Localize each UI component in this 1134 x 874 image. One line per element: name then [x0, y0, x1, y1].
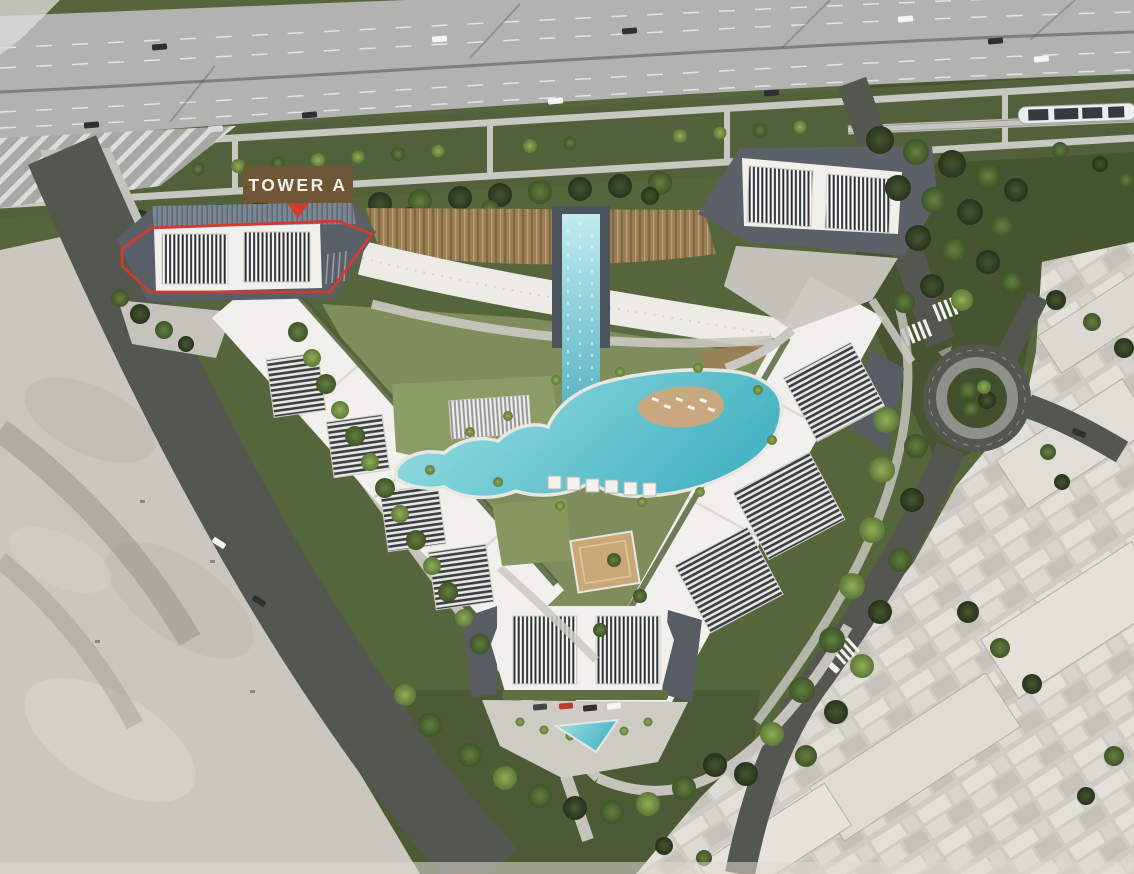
- tower-a-building[interactable]: [116, 202, 376, 302]
- roundabout: [923, 344, 1031, 452]
- site-plan-canvas: TOWER A: [0, 0, 1134, 874]
- sports-court: [570, 531, 639, 592]
- bottom-edge-strip: [0, 862, 1134, 874]
- tram-train: [1018, 103, 1134, 124]
- tower-a-label[interactable]: TOWER A: [248, 175, 347, 195]
- aerial-site-plan: TOWER A: [0, 0, 1134, 874]
